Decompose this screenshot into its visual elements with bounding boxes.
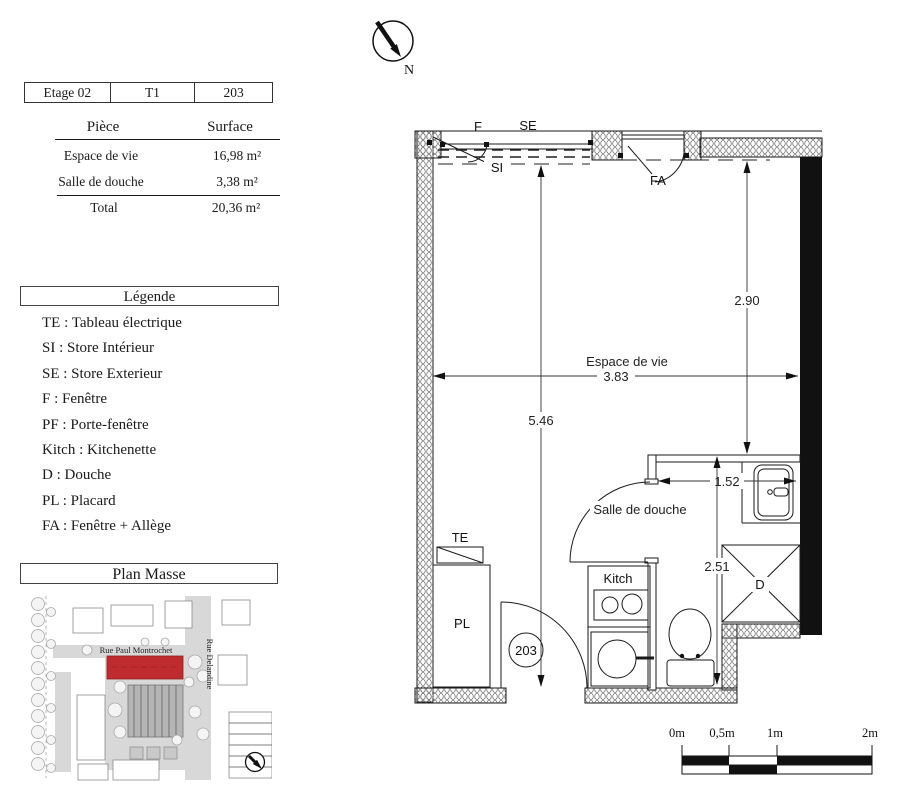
store-interieur-label: SI [491, 160, 503, 175]
svg-text:2.51: 2.51 [704, 559, 729, 574]
type-cell: T1 [110, 83, 195, 102]
dimension-living-height: 2.90 [730, 161, 764, 454]
legend-item: PL : Placard [42, 489, 182, 514]
legend-title-box: Légende [20, 286, 279, 306]
legend-item: D : Douche [42, 463, 182, 488]
dimension-bath-width: 1.52 [658, 473, 796, 489]
street-label-vertical: Rue Delandine [205, 639, 215, 690]
kitchenette-label: Kitch [604, 571, 633, 586]
total-value: 20,36 m² [212, 200, 260, 216]
legend-item: F : Fenêtre [42, 387, 182, 412]
electrical-board-label: TE [452, 530, 469, 545]
room-area: 16,98 m² [213, 148, 261, 164]
floor-cell: Etage 02 [25, 83, 110, 102]
living-room-label: Espace de vie [586, 354, 668, 369]
scale-tick-label: 2m [862, 726, 878, 740]
legend-item: Kitch : Kitchenette [42, 438, 182, 463]
floor-plan-sheet: Etage 02 T1 203 Pièce Surface Espace de … [0, 0, 920, 800]
dimension-living-width: 3.83 [433, 369, 798, 384]
legend-title: Légende [124, 289, 176, 305]
room-name: Salle de douche [58, 174, 143, 190]
surface-table-rule-top [55, 139, 280, 140]
highlighted-building [107, 656, 183, 679]
north-arrow: N [363, 10, 443, 82]
unit-info-table: Etage 02 T1 203 [24, 82, 273, 103]
plan-masse-title: Plan Masse [112, 566, 185, 583]
tree-row [32, 596, 56, 778]
room-name: Espace de vie [64, 148, 138, 164]
legend-item: SI : Store Intérieur [42, 336, 182, 361]
legend-item: PF : Porte-fenêtre [42, 413, 182, 438]
shower-label: D [755, 577, 764, 592]
surface-table-rule-total [57, 195, 280, 196]
compass-needle [377, 22, 394, 47]
street-label-horizontal: Rue Paul Montrochet [100, 645, 173, 655]
washbasin [742, 462, 800, 523]
scale-tick-label: 1m [767, 726, 783, 740]
room-area: 3,38 m² [216, 174, 258, 190]
load-bearing-wall [800, 157, 822, 635]
svg-text:3.83: 3.83 [603, 369, 628, 384]
room-number-badge: 203 [509, 633, 543, 667]
window-f-label: F [474, 119, 482, 134]
central-building [128, 685, 183, 737]
total-label: Total [90, 200, 118, 216]
bathroom-label: Salle de douche [593, 502, 686, 517]
closet-label: PL [454, 616, 470, 631]
fenetre-allege-label: FA [650, 173, 666, 188]
svg-text:2.90: 2.90 [734, 293, 759, 308]
surface-table-col-surface: Surface [207, 119, 253, 136]
site-map: Rue Paul Montrochet Rue Delandine [25, 592, 272, 782]
scale-tick-label: 0,5m [709, 726, 735, 740]
room-number: 203 [515, 643, 537, 658]
svg-text:5.46: 5.46 [528, 413, 553, 428]
svg-text:1.52: 1.52 [714, 474, 739, 489]
store-exterieur-label: SE [519, 118, 537, 133]
north-label: N [404, 63, 414, 78]
toilet [667, 609, 714, 686]
site-buildings [73, 600, 272, 780]
legend-list: TE : Tableau électrique SI : Store Intér… [42, 311, 182, 540]
electrical-board [437, 547, 483, 563]
floor-plan-drawing: F SE SI FA 203 TE [403, 105, 845, 710]
scale-bar: 0m 0,5m 1m 2m [658, 716, 895, 786]
legend-item: FA : Fenêtre + Allège [42, 514, 182, 539]
bathroom-door [570, 482, 650, 562]
scale-tick-label: 0m [669, 726, 685, 740]
surface-table-col-piece: Pièce [87, 119, 119, 136]
map-compass-icon [246, 753, 265, 772]
shower: D [722, 545, 800, 622]
unit-number-cell: 203 [194, 83, 272, 102]
plan-masse-title-box: Plan Masse [20, 563, 278, 584]
side-lane [55, 672, 71, 772]
legend-item: SE : Store Exterieur [42, 362, 182, 387]
legend-item: TE : Tableau électrique [42, 311, 182, 336]
dimension-total-height: 5.46 [524, 165, 559, 687]
